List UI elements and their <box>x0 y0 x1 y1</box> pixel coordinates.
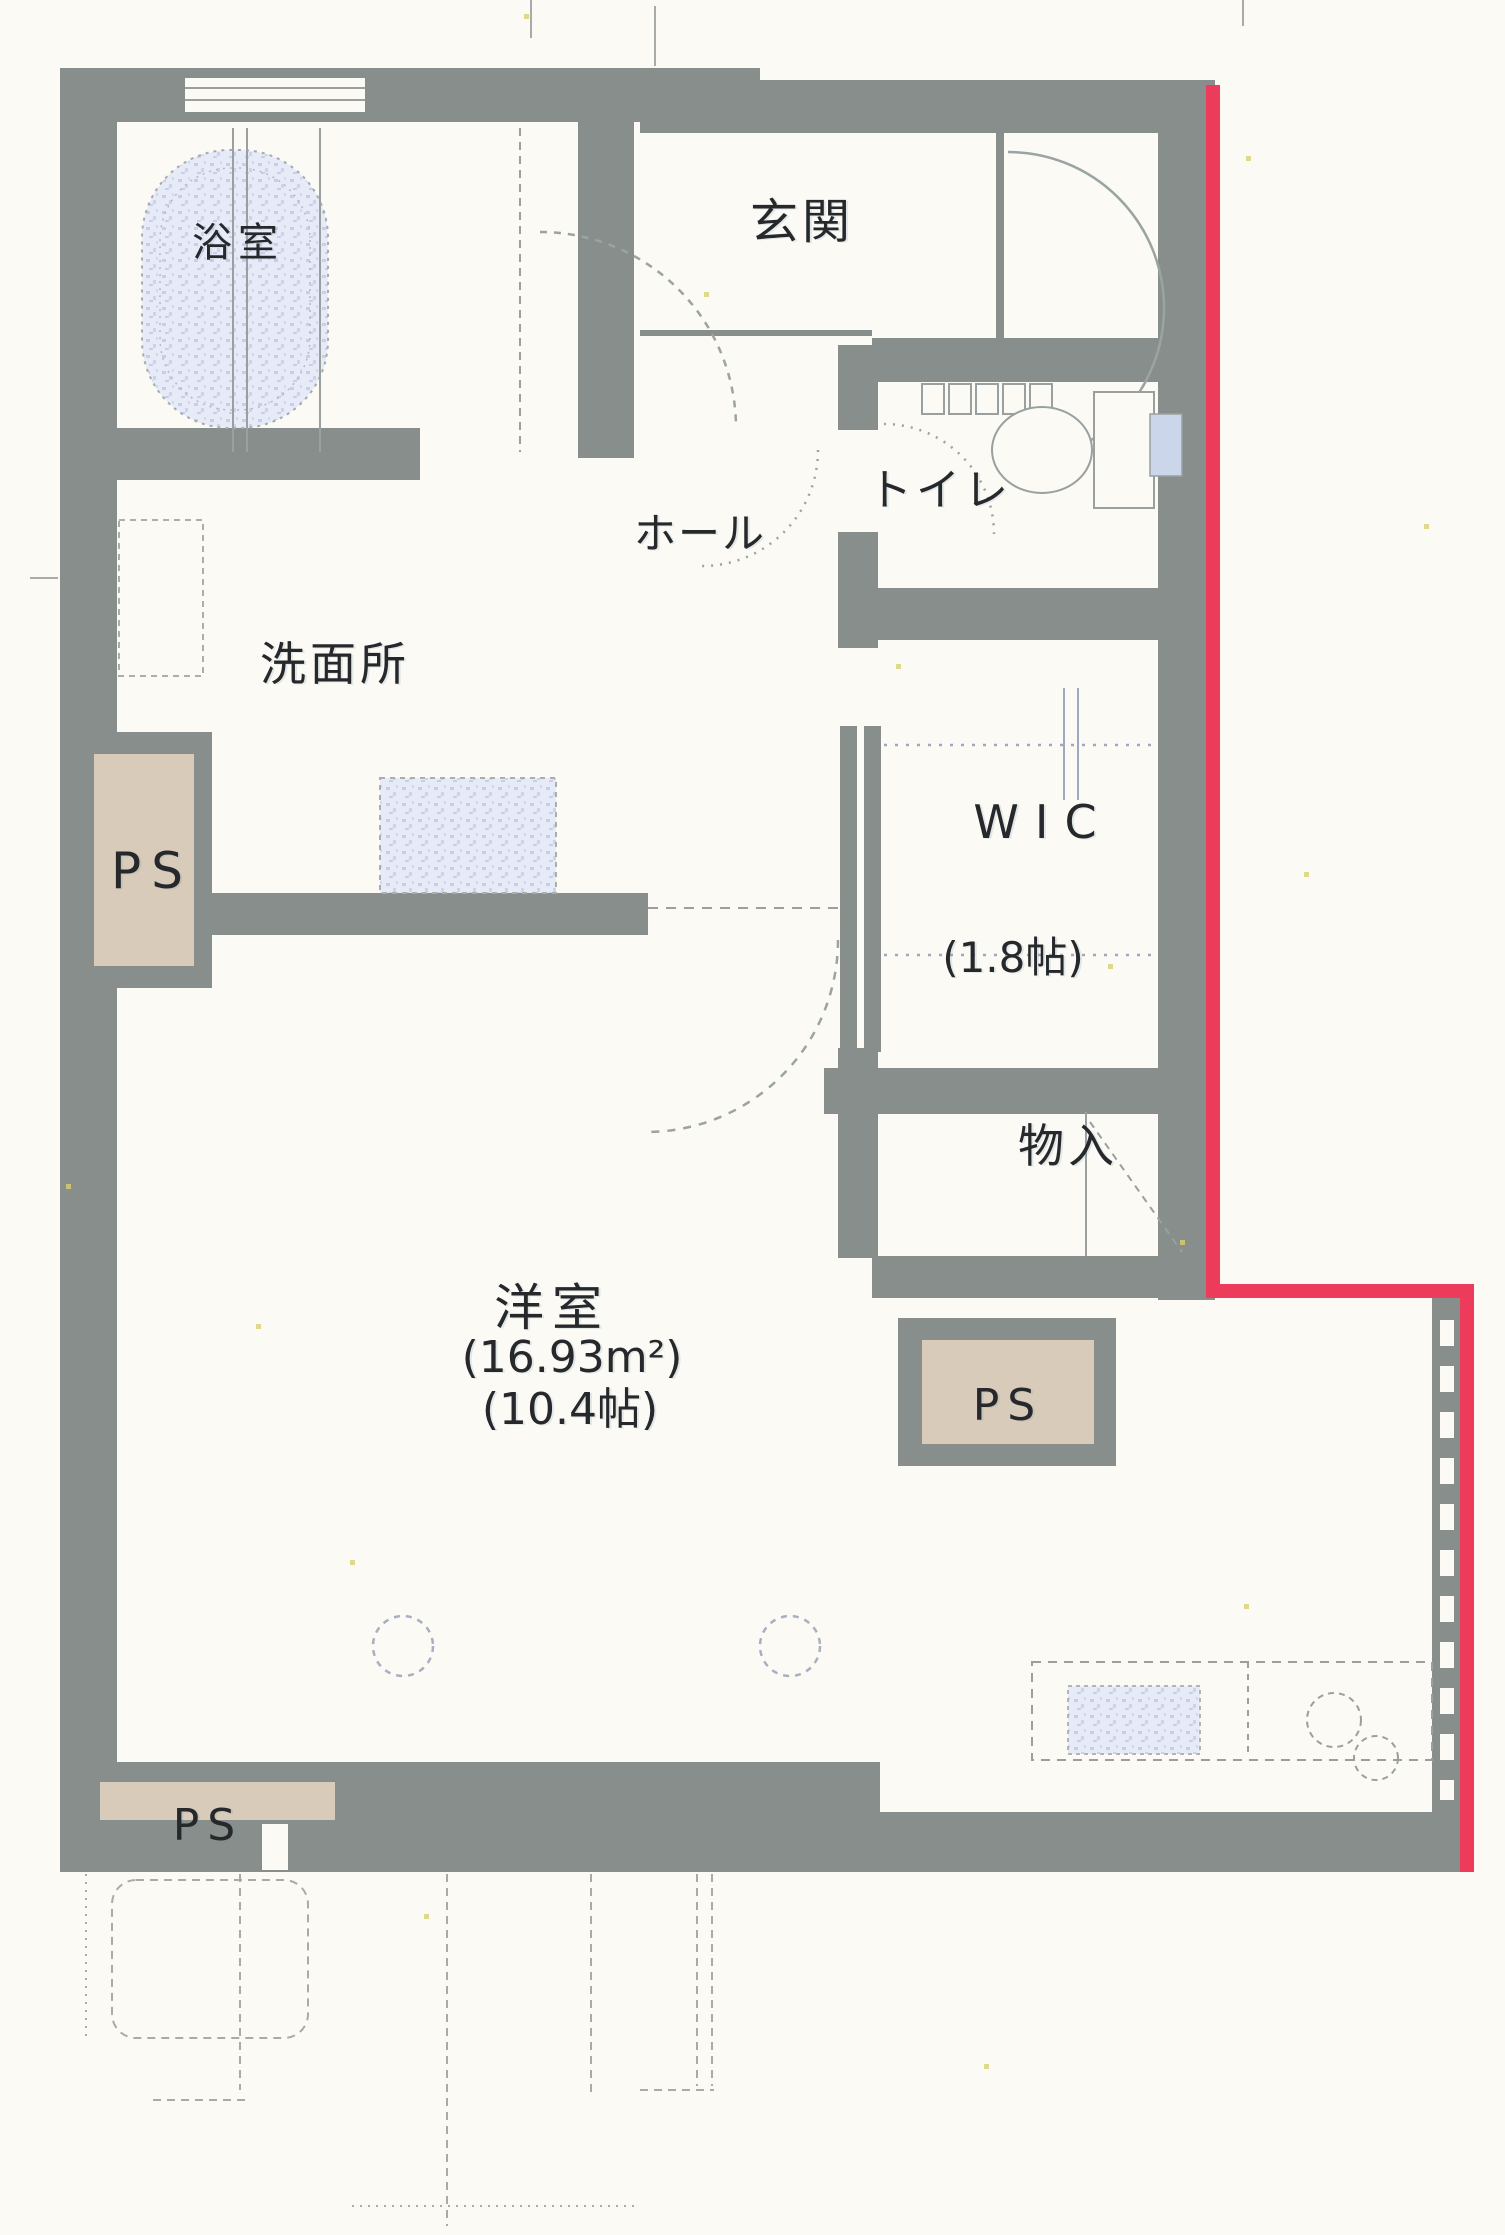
main-room-area-tatami: (10.4帖) <box>482 1384 658 1435</box>
ceiling-light-right <box>760 1616 820 1676</box>
room-label-bath: 浴室 <box>192 220 284 266</box>
toilet-washlet-box <box>1150 414 1182 476</box>
room-label-storage: 物入 <box>1018 1119 1118 1173</box>
kitchen-burner-2 <box>1354 1736 1398 1780</box>
floorplan-drawing: 浴室 玄関 トイレ ホール 洗面所 WIC (1.8帖) 物入 洋室 (16.9… <box>0 0 1505 2235</box>
wic-hanger-pipes <box>884 745 1156 955</box>
ps-label-right: PS <box>973 1380 1043 1431</box>
bathtub <box>142 150 328 428</box>
kitchen-burner-1 <box>1307 1693 1361 1747</box>
kitchen-sink <box>1068 1686 1200 1754</box>
room-label-main-room: 洋室 <box>494 1279 610 1337</box>
water-heater-dashed-outline <box>112 1874 714 2226</box>
main-room-area-sqm: (16.93m²) <box>462 1332 683 1383</box>
wic-size-label: (1.8帖) <box>942 933 1084 982</box>
room-label-wic: WIC <box>973 795 1112 849</box>
scan-dotted-lines <box>86 1874 638 2206</box>
wash-basin <box>380 778 556 893</box>
washing-machine-space <box>119 520 203 676</box>
room-label-washroom: 洗面所 <box>260 637 410 691</box>
ceiling-light-left <box>373 1616 433 1676</box>
room-label-toilet: トイレ <box>868 465 1012 516</box>
toilet-tank <box>1094 392 1154 508</box>
ps-label-bottom: PS <box>173 1800 243 1851</box>
ps-label-left: PS <box>111 842 193 900</box>
main-room-door-arc <box>646 940 838 1132</box>
room-label-hall: ホール <box>634 509 766 558</box>
floorplan-page: 浴室 玄関 トイレ ホール 洗面所 WIC (1.8帖) 物入 洋室 (16.9… <box>0 0 1505 2235</box>
room-label-entrance: 玄関 <box>750 194 854 250</box>
